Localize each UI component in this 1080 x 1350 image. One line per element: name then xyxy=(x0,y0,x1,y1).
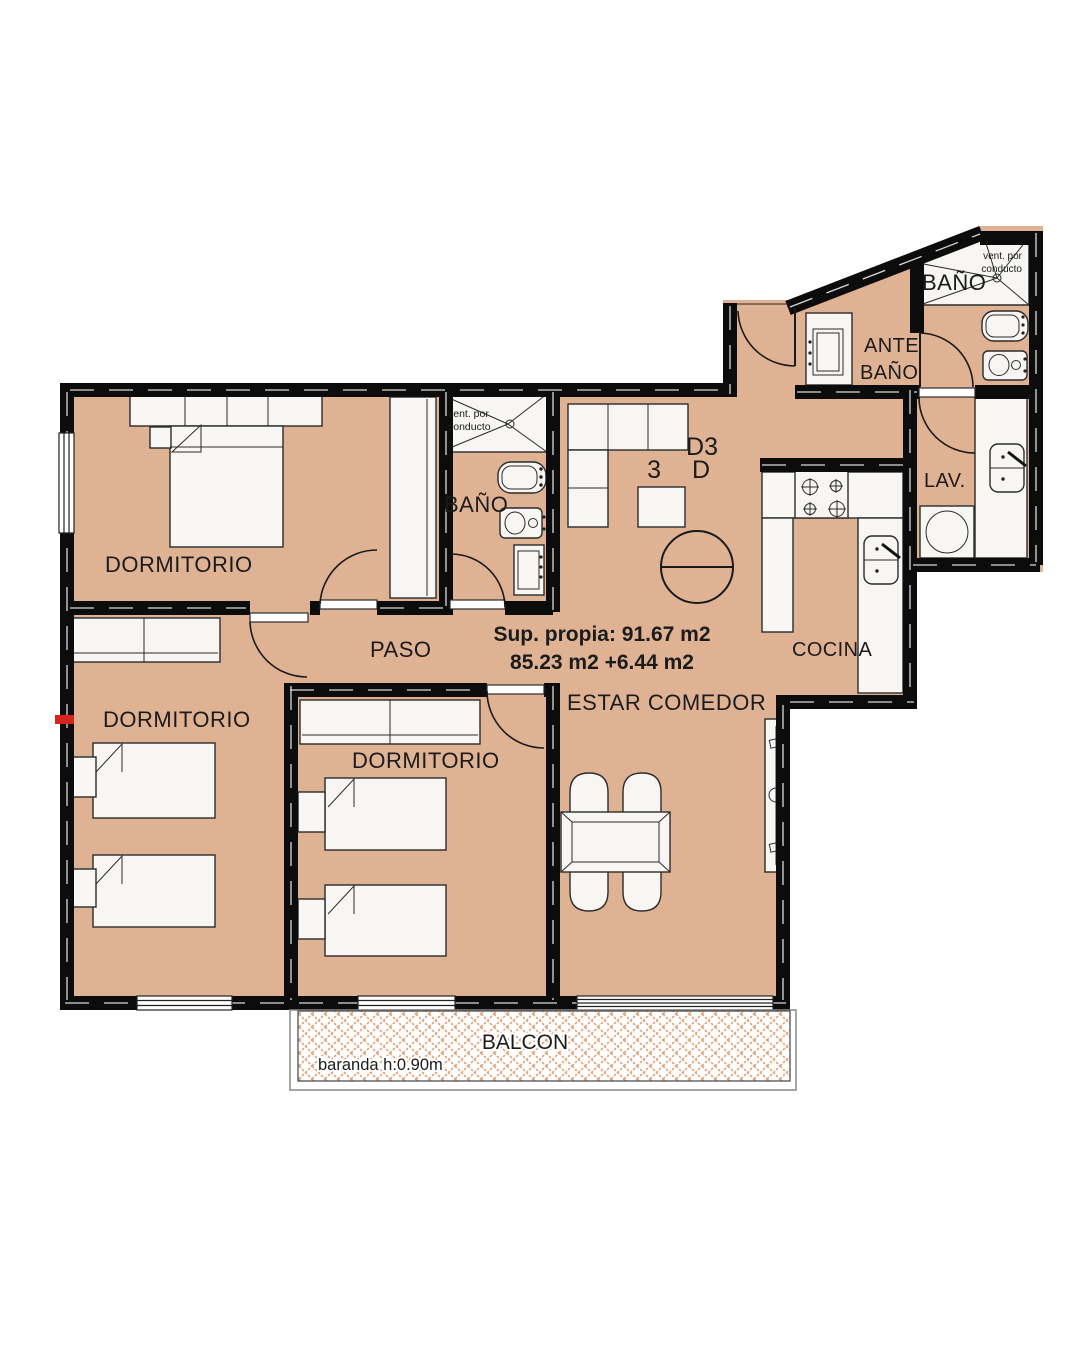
laundry-sink-icon xyxy=(990,444,1026,492)
window xyxy=(358,996,455,1010)
dining-table xyxy=(561,812,670,872)
room-label-dormitorio-1: DORMITORIO xyxy=(105,552,253,577)
floor-plan-page: DORMITORIO DORMITORIO DORMITORIO PASO BA… xyxy=(0,0,1080,1350)
vent-note-mid-2: conducto xyxy=(448,421,491,433)
vent-note-top-2: conducto xyxy=(981,264,1022,275)
window-balcony-door xyxy=(577,996,773,1010)
chair xyxy=(623,773,661,816)
room-label-dormitorio-3: DORMITORIO xyxy=(352,748,500,773)
vent-note-mid-1: vent. por xyxy=(448,408,489,420)
boiler-closet xyxy=(806,313,852,385)
room-label-antebano-2: BAÑO xyxy=(860,360,918,384)
bedroom3-wardrobe xyxy=(300,700,480,744)
bathtub-icon xyxy=(982,311,1028,341)
sink-icon xyxy=(514,545,544,595)
bedroom1-closet xyxy=(390,397,436,598)
room-label-lav: LAV. xyxy=(924,470,966,492)
stove-icon xyxy=(795,471,848,518)
chair xyxy=(570,868,608,911)
room-label-cocina: COCINA xyxy=(792,639,872,661)
bidet-icon xyxy=(983,351,1027,380)
double-bed xyxy=(150,425,283,547)
side-table xyxy=(638,487,685,527)
chair xyxy=(623,868,661,911)
room-label-dormitorio-2: DORMITORIO xyxy=(103,707,251,732)
room-label-bano-top: BAÑO xyxy=(922,270,986,295)
unit-label-line2: 3 D xyxy=(647,456,722,484)
room-label-balcon: BALCON xyxy=(482,1031,568,1054)
bedroom1-wardrobe xyxy=(130,396,322,426)
room-label-bano-mid: BAÑO xyxy=(444,492,508,517)
room-label-estar: ESTAR COMEDOR xyxy=(567,690,766,715)
bedroom2-wardrobe xyxy=(68,618,220,662)
red-marker xyxy=(55,715,74,724)
baranda-note: baranda h:0.90m xyxy=(318,1056,443,1074)
area-text-line2: 85.23 m2 +6.44 m2 xyxy=(510,651,694,674)
room-label-antebano-1: ANTE xyxy=(864,335,919,357)
vent-note-top-1: vent. por xyxy=(983,251,1023,262)
washing-machine-icon xyxy=(920,506,974,558)
area-text-line1: Sup. propia: 91.67 m2 xyxy=(493,623,710,646)
floor-plan-drawing: DORMITORIO DORMITORIO DORMITORIO PASO BA… xyxy=(0,0,1080,1350)
chair xyxy=(570,773,608,816)
window xyxy=(137,996,232,1010)
window xyxy=(59,433,74,533)
kitchen-sink-icon xyxy=(864,536,900,584)
room-label-paso: PASO xyxy=(370,637,432,662)
bathtub-icon xyxy=(498,462,546,493)
